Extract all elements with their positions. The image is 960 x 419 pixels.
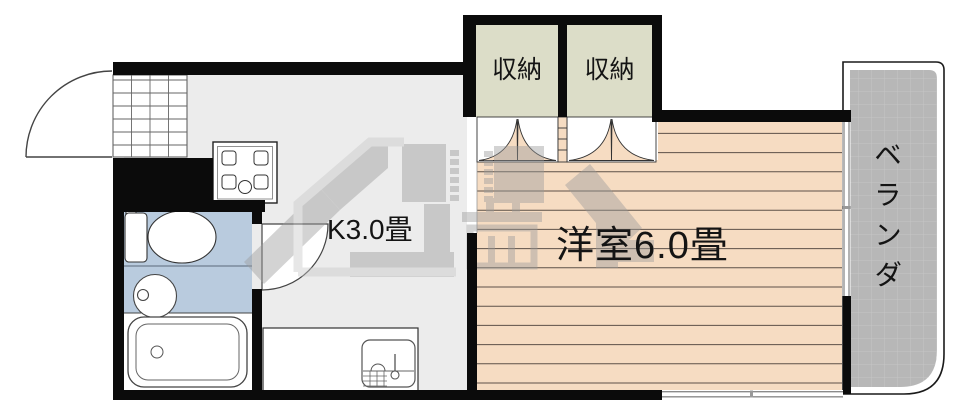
closet-left-label: 収納: [477, 58, 557, 83]
entrance-door: [26, 71, 112, 157]
wash-basin: [134, 275, 177, 318]
sliding-glass-door: [843, 122, 851, 296]
kitchen-label: K3.0畳: [327, 216, 413, 244]
window: [662, 390, 843, 398]
genkan-tile-grid: [113, 75, 187, 157]
closet-right-label: 収納: [567, 58, 652, 83]
bathroom: [124, 209, 252, 390]
western-room-label: 洋室6.0畳: [556, 227, 729, 265]
gas-stove: [213, 142, 277, 203]
floor-plan: 収納 収納 K3.0畳 洋室6.0畳 ベランダ: [0, 0, 960, 419]
toilet: [125, 209, 216, 263]
veranda-label: ベランダ: [872, 140, 900, 300]
bathtub: [128, 317, 247, 387]
kitchen-counter-sink: [263, 328, 418, 391]
